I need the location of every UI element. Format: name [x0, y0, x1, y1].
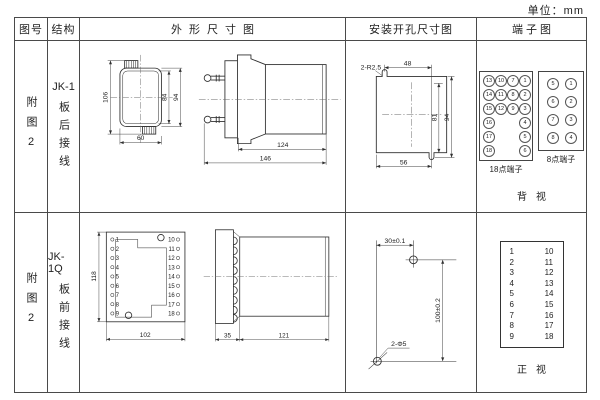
row1-fig-no-text: 附图2: [23, 96, 39, 157]
terminal-pin: 5: [547, 78, 559, 90]
terminal-18pt-box: 131071 141182 151293 164 175 186: [479, 71, 533, 161]
terminal-pin: 15: [483, 103, 495, 115]
front-view-label: 正视: [508, 361, 555, 376]
front-pin-label: 2: [116, 247, 120, 253]
front-pin-label: 13: [168, 265, 175, 271]
header-install: 安装开孔尺寸图: [346, 18, 477, 41]
front-pin-label: 14: [168, 275, 175, 281]
header-outline: 外形尺寸图: [80, 18, 346, 41]
row1-model: JK-1: [52, 81, 75, 93]
front-pin-label: 18: [168, 312, 175, 318]
terminal-pin: 7: [547, 114, 559, 126]
row1-terminal-diagram: 131071 141182 151293 164 175 186 18点端子 5…: [477, 41, 586, 213]
row2-structure: JK-1Q 板前接线: [48, 213, 80, 392]
terminal-pin: 3: [519, 103, 531, 115]
terminal-pin: [507, 117, 519, 129]
terminal-pin: 12: [495, 103, 507, 115]
terminal-number: 11: [545, 258, 554, 269]
front-pin-label: 12: [168, 256, 175, 262]
terminal-number: 13: [545, 279, 554, 290]
jk1-terminal-stud-bottom: [204, 116, 225, 123]
jk1q-drill-holes: [369, 240, 457, 369]
row2-outline-drawings: 1 2 3 4 5 6 7 8 9 10 11 12 13 14 15 16 1…: [80, 213, 346, 392]
jk1q-side-body: [204, 230, 338, 324]
jk1q-drill-dimensions: 30±0.1 100±0.2 2-Φ5: [376, 238, 442, 361]
dim-121-label: 121: [279, 332, 290, 339]
header-terminal: 端子图: [477, 18, 586, 41]
terminal-pin: 11: [495, 89, 507, 101]
row1-wiring: 板后接线: [56, 101, 72, 173]
front-pin-label: 6: [116, 284, 120, 290]
jk1-terminal-stud-top: [204, 75, 225, 82]
spec-table: 图号 结构 外形尺寸图 安装开孔尺寸图 端子图 附图2 JK-1 板后接线: [14, 17, 587, 393]
terminal-pin: 2: [565, 96, 577, 108]
terminal-pin: 8: [507, 89, 519, 101]
terminal-pin: [495, 117, 507, 129]
dim-102-label: 102: [140, 332, 151, 339]
jk1q-drill-drawing: 30±0.1 100±0.2 2-Φ5: [347, 215, 475, 371]
terminal-pin: 3: [565, 114, 577, 126]
terminal-number: 14: [545, 289, 554, 300]
holes-label: 2-Φ5: [391, 341, 406, 348]
terminal-left-column: 1 2 3 4 5 6 7 8 9: [510, 247, 514, 342]
jk1q-front-terminal-labels: 1 2 3 4 5 6 7 8 9 10 11 12 13 14 15 16 1…: [111, 238, 180, 318]
row1-fig-no: 附图2: [15, 41, 48, 213]
jk1-side-view-drawing: 124 146: [196, 45, 345, 169]
jk1-cutout-drawing: 48 2-R2.5 81 94 56: [347, 43, 475, 192]
terminal-number: 3: [510, 268, 514, 279]
row2-fig-no-text: 附图2: [23, 272, 39, 333]
unit-label: 单位：mm: [528, 2, 584, 18]
terminal-pin: [507, 145, 519, 157]
header-structure: 结构: [48, 18, 80, 41]
terminal-pin: 10: [495, 75, 507, 87]
terminal-number: 16: [545, 311, 554, 322]
dim-94-cutout-label: 94: [444, 114, 451, 122]
front-pin-label: 3: [116, 256, 120, 262]
terminal-pin: 13: [483, 75, 495, 87]
front-pin-label: 17: [168, 302, 175, 308]
terminal-number: 9: [510, 332, 514, 343]
terminal-number: 2: [510, 258, 514, 269]
dim-60-label: 60: [137, 135, 145, 142]
jk1q-side-view-drawing: 35 121: [201, 217, 345, 356]
terminal-number: 6: [510, 300, 514, 311]
header-install-label: 安装开孔尺寸图: [369, 21, 453, 37]
header-structure-label: 结构: [52, 21, 76, 37]
terminal-number: 10: [545, 247, 554, 258]
jk1-front-view-drawing: 106 84 94 60: [86, 45, 192, 161]
dim-84-label: 84: [162, 93, 169, 101]
slot-radius-label: 2-R2.5: [361, 65, 382, 72]
terminal-boxes: 131071 141182 151293 164 175 186 18点端子 5…: [479, 71, 584, 175]
terminal-number: 18: [545, 332, 554, 343]
terminal-pin: [495, 145, 507, 157]
terminal-pin: 9: [507, 103, 519, 115]
header-outline-label: 外形尺寸图: [164, 21, 261, 37]
terminal-number: 7: [510, 311, 514, 322]
dim-106-label: 106: [103, 92, 110, 103]
terminal-pin: 8: [547, 132, 559, 144]
terminal-pin: 6: [519, 145, 531, 157]
terminal-8pt: 51 62 73 84 8点端子: [538, 71, 584, 175]
terminal-pin: 4: [519, 117, 531, 129]
terminal-number: 8: [510, 321, 514, 332]
terminal-18pt-label: 18点端子: [490, 164, 523, 175]
dim-94-label: 94: [173, 93, 180, 101]
terminal-number: 1: [510, 247, 514, 258]
dim-56-label: 56: [400, 159, 408, 166]
front-pin-label: 10: [168, 238, 175, 244]
terminal-pin: 6: [547, 96, 559, 108]
front-pin-label: 5: [116, 275, 120, 281]
row2-model: JK-1Q: [48, 251, 79, 275]
row2-fig-no: 附图2: [15, 213, 48, 392]
terminal-pin: 18: [483, 145, 495, 157]
terminal-pin: [507, 131, 519, 143]
terminal-number: 15: [545, 300, 554, 311]
row2-wiring: 板前接线: [56, 283, 72, 355]
jk1q-front-view-drawing: 1 2 3 4 5 6 7 8 9 10 11 12 13 14 15 16 1…: [86, 217, 197, 360]
jk1-side-body: [198, 55, 340, 144]
jk1q-side-dimensions: 35 121: [215, 316, 328, 341]
front-pin-label: 8: [116, 302, 120, 308]
row2-terminal-diagram: 1 2 3 4 5 6 7 8 9 10 11 12 13 14 15 16 1…: [477, 213, 586, 392]
dim-124-label: 124: [277, 142, 288, 149]
terminal-number: 12: [545, 268, 554, 279]
front-pin-label: 4: [116, 265, 120, 271]
terminal-number: 4: [510, 279, 514, 290]
terminal-pin: 14: [483, 89, 495, 101]
rear-view-label: 背视: [508, 188, 555, 203]
front-pin-label: 7: [116, 293, 120, 299]
dim-81-label: 81: [431, 114, 438, 122]
terminal-pin: 4: [565, 132, 577, 144]
terminal-18pt: 131071 141182 151293 164 175 186 18点端子: [479, 71, 533, 175]
row1-structure: JK-1 板后接线: [48, 41, 80, 213]
row1-outline-drawings: 106 84 94 60: [80, 41, 346, 213]
header-fig-no-label: 图号: [19, 21, 43, 37]
terminal-number: 17: [545, 321, 554, 332]
terminal-8pt-label: 8点端子: [547, 154, 575, 165]
terminal-pin: 17: [483, 131, 495, 143]
dim-30-label: 30±0.1: [385, 238, 406, 245]
row2-install-drawing: 30±0.1 100±0.2 2-Φ5: [346, 213, 477, 392]
front-pin-label: 11: [169, 247, 176, 253]
terminal-right-column: 10 11 12 13 14 15 16 17 18: [545, 247, 554, 342]
dim-146-label: 146: [259, 155, 270, 162]
terminal-8pt-box: 51 62 73 84: [538, 71, 584, 151]
front-pin-label: 9: [116, 312, 120, 318]
dim-35-label: 35: [224, 332, 232, 339]
row1-install-drawing: 48 2-R2.5 81 94 56: [346, 41, 477, 213]
terminal-number: 5: [510, 289, 514, 300]
dim-118-label: 118: [91, 271, 98, 282]
terminal-pin: 1: [565, 78, 577, 90]
terminal-pin: 5: [519, 131, 531, 143]
front-pin-label: 1: [116, 238, 120, 244]
terminal-front-box: 1 2 3 4 5 6 7 8 9 10 11 12 13 14 15 16 1…: [500, 241, 564, 348]
front-pin-label: 16: [168, 293, 175, 299]
header-fig-no: 图号: [15, 18, 48, 41]
dim-48-label: 48: [404, 61, 412, 68]
terminal-pin: 2: [519, 89, 531, 101]
terminal-pin: 1: [519, 75, 531, 87]
dim-100-label: 100±0.2: [435, 298, 442, 323]
terminal-pin: 16: [483, 117, 495, 129]
terminal-pin: [495, 131, 507, 143]
terminal-pin: 7: [507, 75, 519, 87]
header-terminal-label: 端子图: [509, 21, 554, 37]
front-pin-label: 15: [168, 284, 175, 290]
